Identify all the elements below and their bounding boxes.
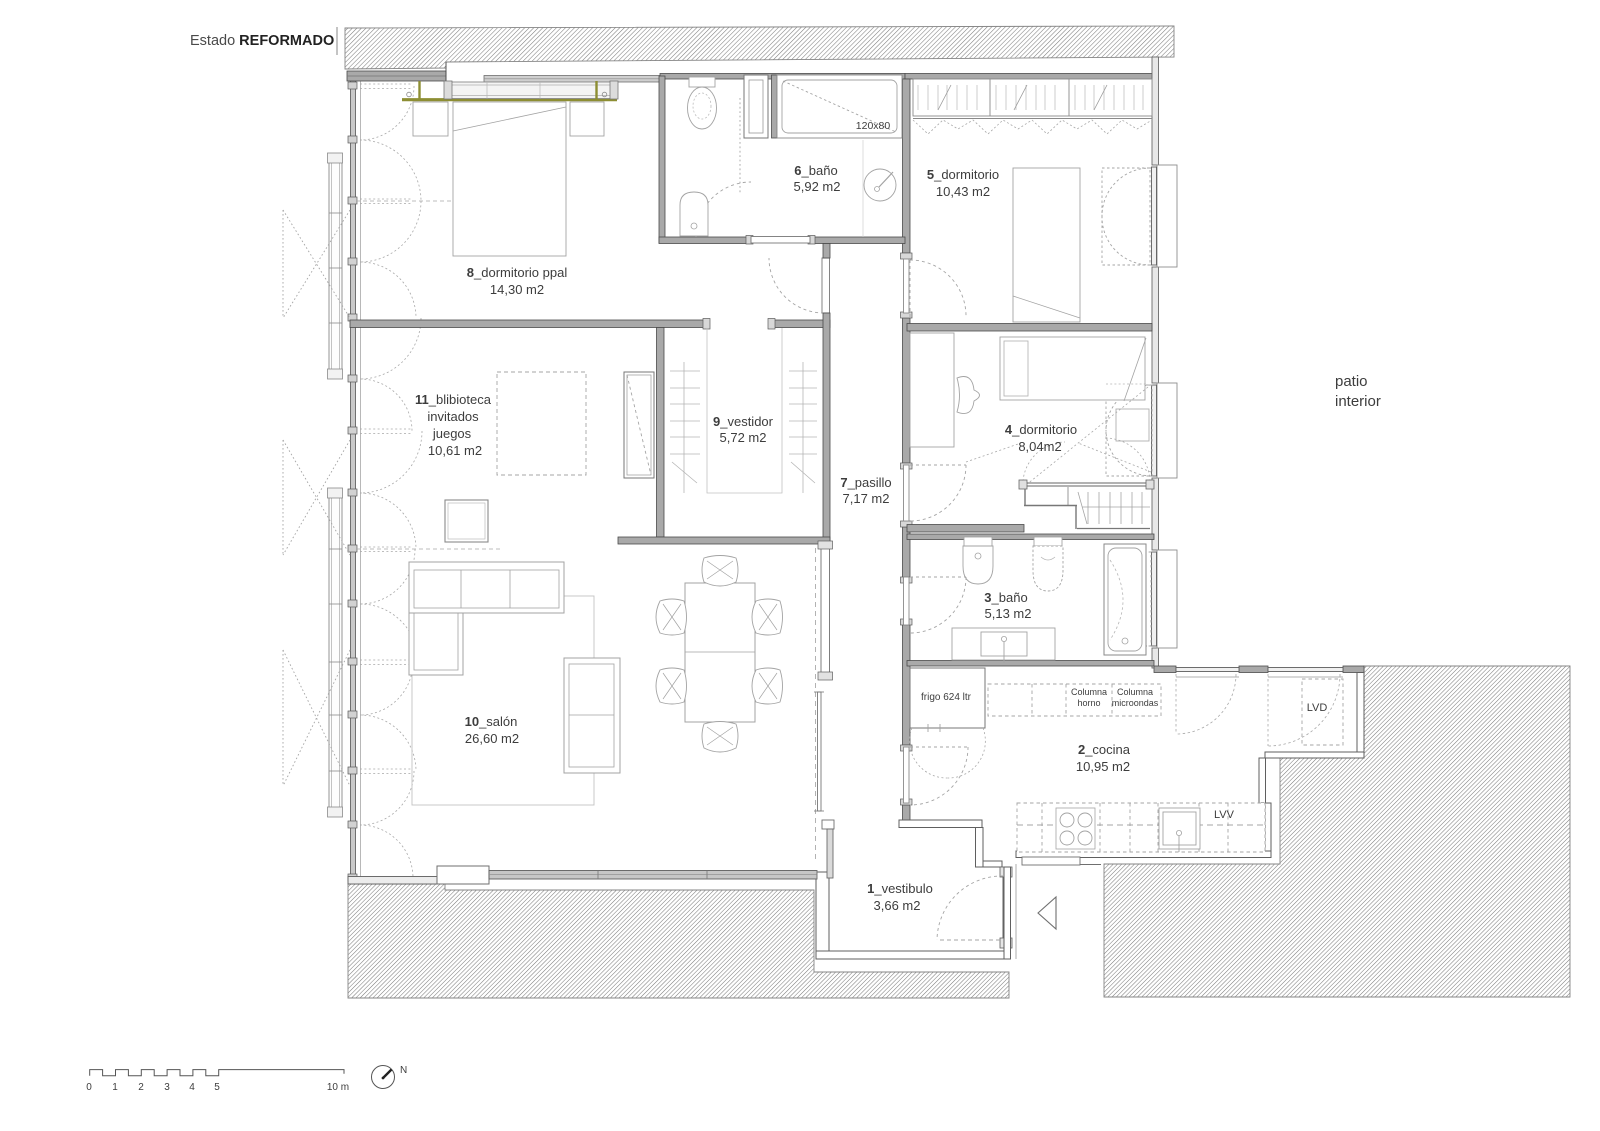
svg-text:10 m: 10 m [327,1082,349,1093]
svg-text:LVD: LVD [1307,702,1328,714]
svg-text:0: 0 [86,1082,92,1093]
svg-text:juegos: juegos [432,426,472,441]
svg-text:3_baño: 3_baño [984,590,1027,605]
svg-text:1_vestibulo: 1_vestibulo [867,881,933,896]
svg-text:5,72 m2: 5,72 m2 [720,430,767,445]
svg-text:6_baño: 6_baño [794,163,837,178]
svg-text:frigo 624 ltr: frigo 624 ltr [921,692,972,703]
svg-text:7_pasillo: 7_pasillo [840,475,891,490]
svg-text:Estado REFORMADO: Estado REFORMADO [190,33,334,49]
svg-text:10,43 m2: 10,43 m2 [936,184,990,199]
svg-text:5,92 m2: 5,92 m2 [794,179,841,194]
svg-text:2_cocina: 2_cocina [1078,742,1131,757]
svg-text:120x80: 120x80 [856,120,891,132]
svg-text:7,17 m2: 7,17 m2 [843,491,890,506]
svg-text:microondas: microondas [1112,698,1159,708]
svg-text:1: 1 [112,1082,118,1093]
svg-text:10,95 m2: 10,95 m2 [1076,759,1130,774]
svg-text:patio: patio [1335,373,1368,390]
svg-text:Columna: Columna [1117,687,1153,697]
svg-text:26,60 m2: 26,60 m2 [465,731,519,746]
svg-text:interior: interior [1335,393,1381,410]
svg-text:14,30 m2: 14,30 m2 [490,282,544,297]
svg-text:5: 5 [214,1082,220,1093]
svg-text:LVV: LVV [1214,809,1235,821]
svg-text:10,61 m2: 10,61 m2 [428,443,482,458]
svg-text:3: 3 [164,1082,170,1093]
svg-text:10_salón: 10_salón [465,714,518,729]
svg-text:N: N [400,1065,407,1076]
svg-text:Columna: Columna [1071,687,1107,697]
svg-text:11_blibioteca: 11_blibioteca [415,392,492,407]
svg-text:5_dormitorio: 5_dormitorio [927,167,999,182]
svg-text:4: 4 [189,1082,195,1093]
svg-text:2: 2 [138,1082,144,1093]
svg-text:8_dormitorio ppal: 8_dormitorio ppal [467,265,568,280]
svg-text:4_dormitorio: 4_dormitorio [1005,422,1077,437]
svg-text:horno: horno [1077,698,1100,708]
svg-text:9_vestidor: 9_vestidor [713,414,774,429]
svg-text:3,66 m2: 3,66 m2 [874,898,921,913]
svg-text:invitados: invitados [427,409,479,424]
svg-text:8,04m2: 8,04m2 [1018,439,1061,454]
svg-text:5,13 m2: 5,13 m2 [985,606,1032,621]
